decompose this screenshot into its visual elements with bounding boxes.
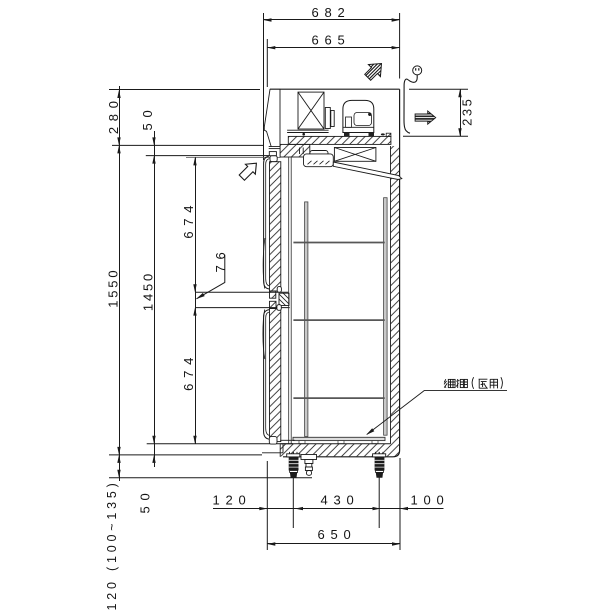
svg-text:650: 650: [318, 527, 357, 542]
svg-text:1550: 1550: [105, 268, 120, 308]
svg-text:50: 50: [138, 488, 153, 514]
svg-text:674: 674: [181, 352, 196, 391]
svg-text:100: 100: [411, 493, 450, 508]
svg-text:674: 674: [181, 200, 196, 239]
svg-text:430: 430: [321, 493, 360, 508]
svg-text:1450: 1450: [141, 271, 156, 311]
svg-text:235: 235: [460, 97, 475, 126]
svg-text:76: 76: [213, 247, 228, 273]
svg-text:665: 665: [312, 33, 351, 48]
svg-text:120: 120: [213, 493, 252, 508]
svg-text:50: 50: [140, 105, 155, 131]
svg-text:682: 682: [312, 5, 351, 20]
svg-text:120 (100~135): 120 (100~135): [105, 479, 119, 610]
svg-text:280: 280: [106, 95, 121, 134]
